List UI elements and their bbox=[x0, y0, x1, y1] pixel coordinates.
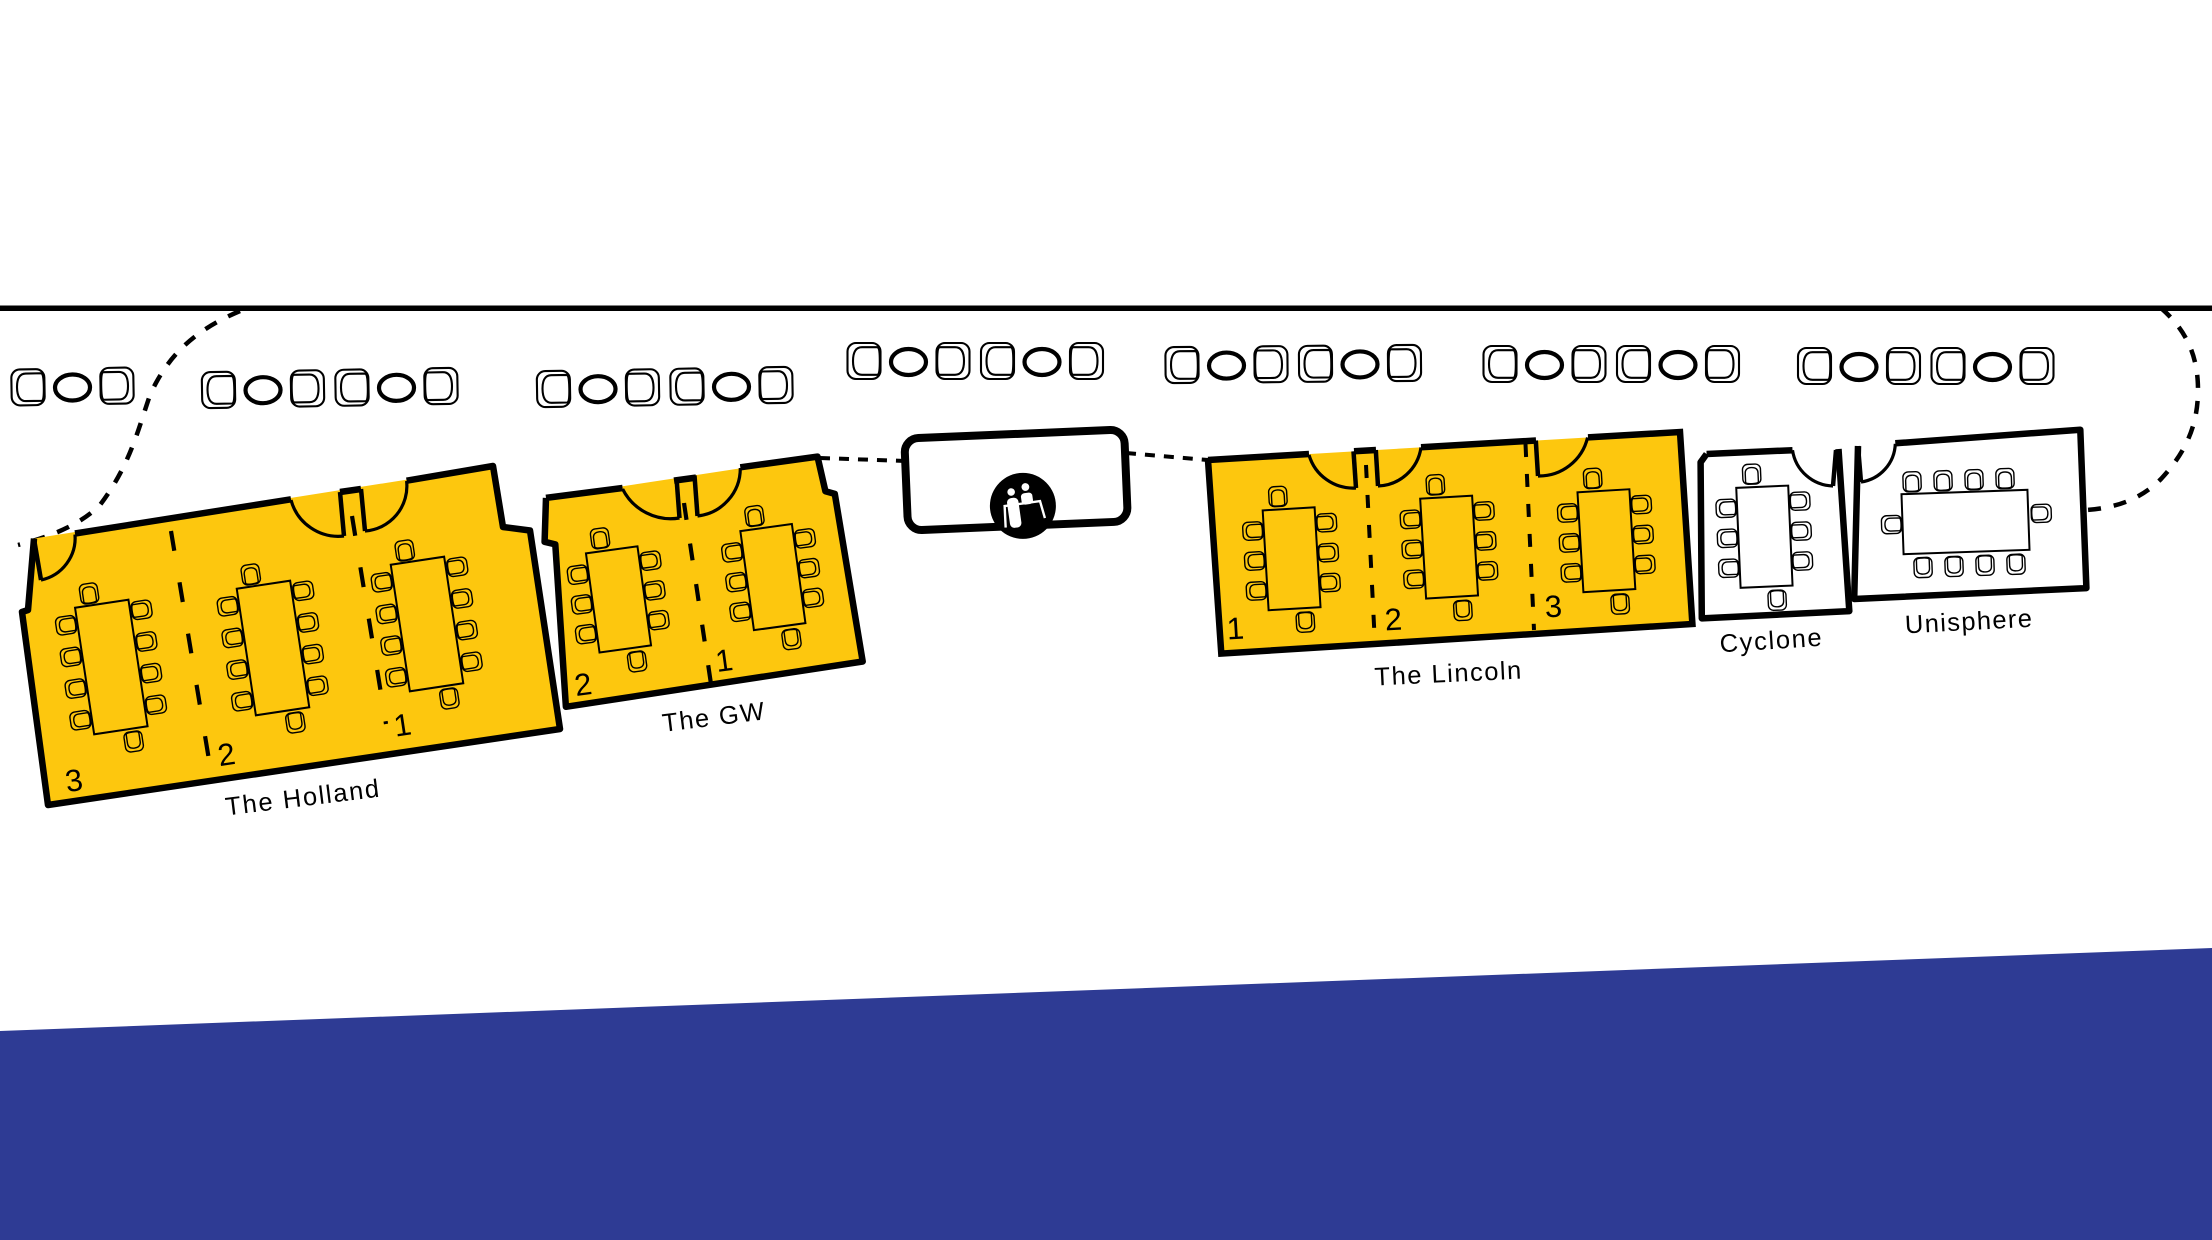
svg-text:3: 3 bbox=[1544, 589, 1563, 625]
svg-text:2: 2 bbox=[1384, 602, 1403, 638]
svg-text:1: 1 bbox=[1226, 611, 1245, 647]
